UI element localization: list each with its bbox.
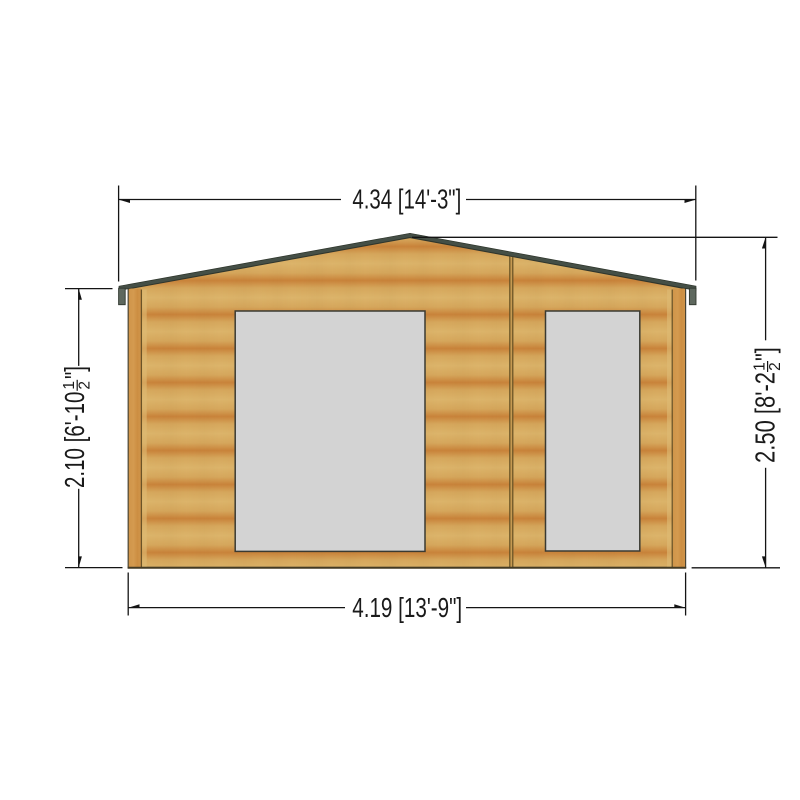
svg-text:"]: "] <box>750 347 781 361</box>
svg-text:2: 2 <box>767 362 784 371</box>
svg-text:2: 2 <box>77 381 94 390</box>
svg-text:"]: "] <box>60 366 91 379</box>
svg-text:1: 1 <box>61 381 78 390</box>
svg-text:1: 1 <box>752 362 769 371</box>
svg-text:4.34 [14'-3"]: 4.34 [14'-3"] <box>352 185 461 216</box>
svg-text:4.19 [13'-9"]: 4.19 [13'-9"] <box>352 593 462 624</box>
svg-text:2.10 [6'-10: 2.10 [6'-10 <box>60 392 91 488</box>
svg-text:2.50 [8'-2: 2.50 [8'-2 <box>750 372 781 463</box>
